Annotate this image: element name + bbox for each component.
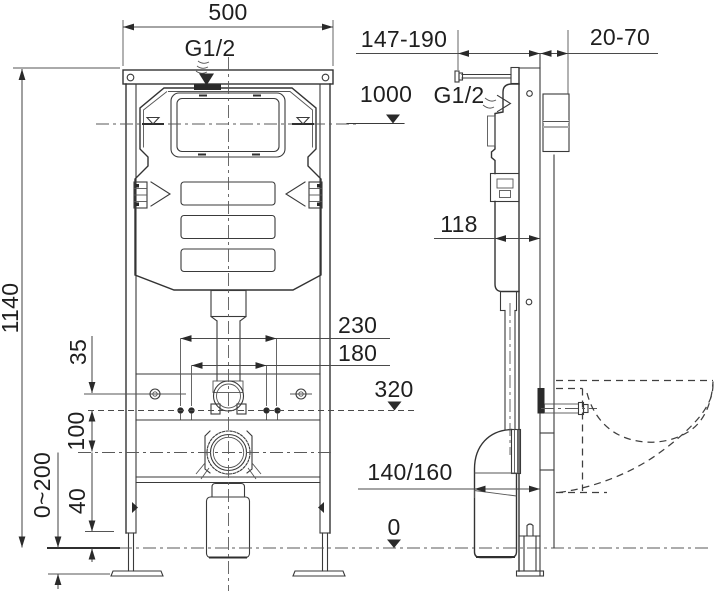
side-latch-left bbox=[134, 182, 170, 208]
dim-0-200-label: 0~200 bbox=[29, 452, 55, 518]
level-0: 0 bbox=[387, 514, 401, 548]
dimension-35: 35 bbox=[65, 336, 95, 393]
level-marker-icon bbox=[386, 115, 400, 124]
mounting-frame bbox=[111, 70, 345, 576]
wall-covering-section bbox=[543, 94, 569, 152]
cistern-slot-2 bbox=[181, 216, 275, 239]
dimension-100: 100 bbox=[63, 411, 95, 452]
dimension-140-160: 140/160 bbox=[358, 459, 540, 492]
dim-180-label: 180 bbox=[338, 340, 377, 366]
dim-35-label: 35 bbox=[65, 339, 91, 365]
dim-1000-label: 1000 bbox=[360, 81, 412, 107]
fixing-rod bbox=[538, 388, 598, 415]
dimension-180: 180 bbox=[192, 340, 391, 406]
dimension-0-200: 0~200 bbox=[29, 452, 110, 589]
frame-screw-hole-left bbox=[127, 74, 134, 81]
drain-elbow-side bbox=[475, 303, 521, 558]
dim-100-label: 100 bbox=[63, 411, 89, 450]
dim-g12-front-label: G1/2 bbox=[184, 35, 235, 61]
frame-screw-hole-right bbox=[322, 74, 329, 81]
dimension-20-70: 20-70 bbox=[541, 24, 651, 94]
level-320: 320 bbox=[88, 376, 417, 411]
flow-arrow-icon bbox=[483, 98, 496, 108]
dimension-1140: 1140 bbox=[0, 68, 120, 548]
dimension-g12-front: G1/2 bbox=[184, 35, 235, 90]
leg-clip-right bbox=[318, 502, 324, 513]
mounting-bolts bbox=[177, 407, 280, 419]
toilet-bowl-outline bbox=[556, 381, 713, 493]
leg-clip-left bbox=[132, 502, 138, 513]
dim-500-label: 500 bbox=[208, 0, 247, 25]
cistern-slot-1 bbox=[181, 182, 275, 205]
rail-screw-holes bbox=[84, 389, 312, 399]
dim-0-label: 0 bbox=[387, 514, 400, 540]
dim-147-190-label: 147-190 bbox=[361, 26, 448, 52]
cistern-slot-3 bbox=[181, 249, 275, 272]
side-latch-right bbox=[286, 182, 322, 208]
technical-drawing-page: 500 G1/2 1140 35 100 40 bbox=[0, 0, 722, 600]
dim-40-label: 40 bbox=[64, 488, 90, 514]
access-panel-outer bbox=[171, 93, 285, 157]
flow-arrow-icon bbox=[196, 61, 209, 73]
inlet-arrow-icon bbox=[498, 96, 511, 112]
dim-320-label: 320 bbox=[374, 376, 413, 402]
inlet-fitting bbox=[194, 85, 221, 91]
dimension-40: 40 bbox=[64, 453, 114, 563]
dim-1140-label: 1140 bbox=[0, 283, 23, 334]
dimension-118: 118 bbox=[434, 211, 540, 242]
level-marker-icon bbox=[388, 402, 402, 411]
adjustable-foot-right bbox=[293, 533, 345, 576]
dim-140-160-label: 140/160 bbox=[367, 459, 452, 485]
drain-pipe bbox=[207, 484, 250, 558]
adjustable-foot-left bbox=[111, 533, 163, 576]
side-view bbox=[455, 54, 713, 577]
dim-g12-side-label: G1/2 bbox=[433, 82, 484, 108]
wc-frame-installation-drawing: 500 G1/2 1140 35 100 40 bbox=[0, 0, 722, 600]
dim-118-label: 118 bbox=[440, 211, 478, 237]
cistern-side-profile bbox=[488, 84, 520, 430]
dim-20-70-label: 20-70 bbox=[590, 24, 650, 50]
level-1000: 1000 G1/2 bbox=[347, 81, 511, 124]
frame-head-rail bbox=[123, 70, 333, 84]
access-panel-inner bbox=[177, 99, 279, 152]
front-view bbox=[78, 57, 360, 591]
level-marker-icon bbox=[387, 540, 401, 549]
dim-230-label: 230 bbox=[338, 312, 377, 338]
